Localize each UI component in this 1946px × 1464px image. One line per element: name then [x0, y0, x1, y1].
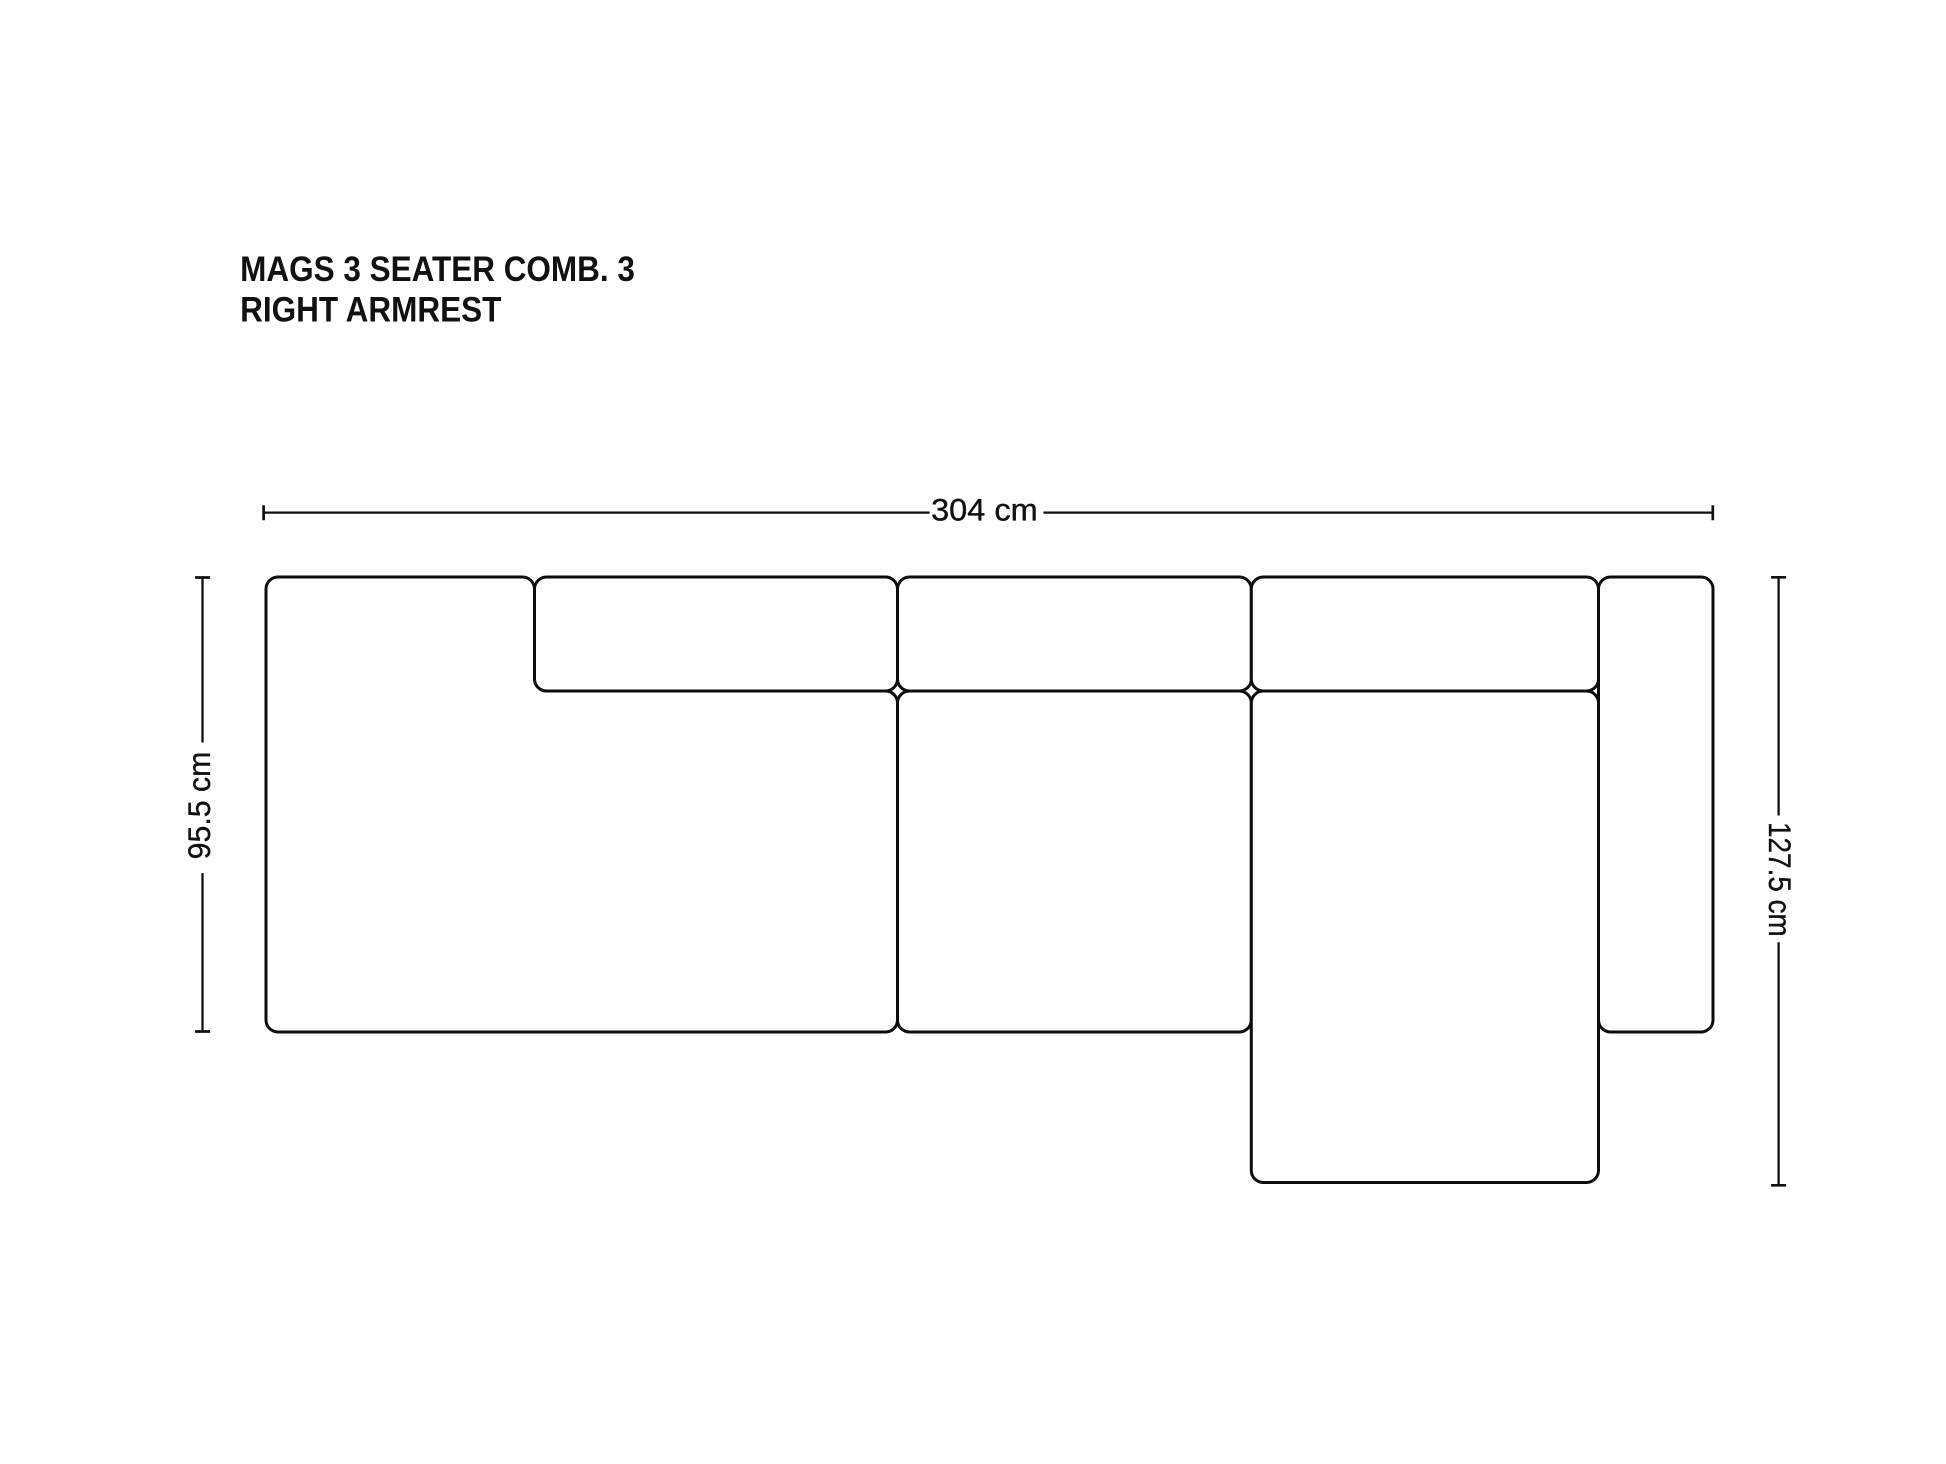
svg-text:95.5 cm: 95.5 cm — [181, 752, 217, 860]
svg-text:RIGHT ARMREST: RIGHT ARMREST — [240, 291, 501, 330]
svg-text:304 cm: 304 cm — [931, 492, 1038, 527]
svg-text:MAGS 3 SEATER COMB. 3: MAGS 3 SEATER COMB. 3 — [240, 250, 635, 289]
svg-text:127.5 cm: 127.5 cm — [1761, 822, 1796, 937]
